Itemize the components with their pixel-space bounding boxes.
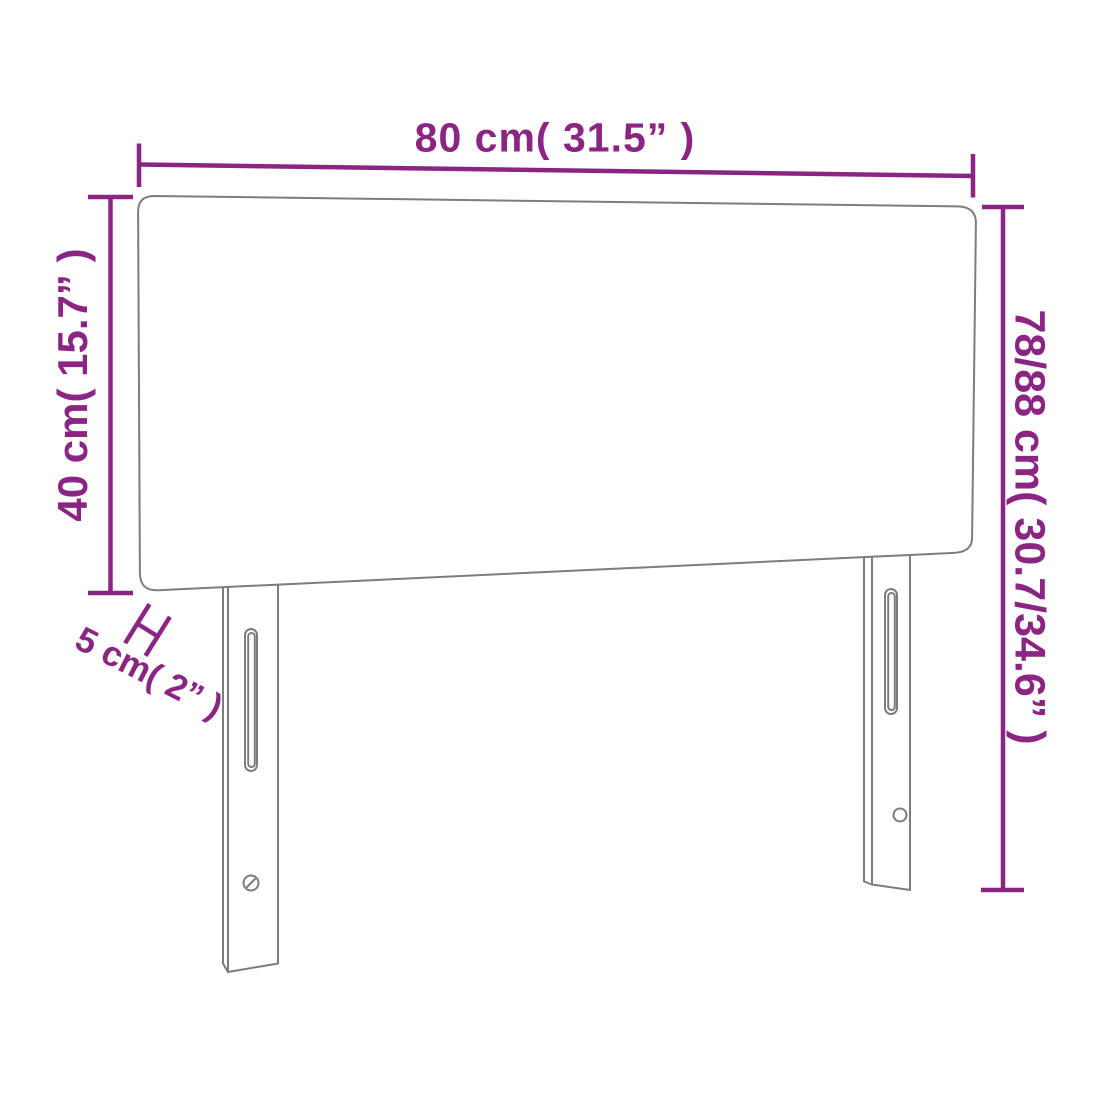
headboard-diagram — [0, 0, 1100, 1100]
width-dimension-line — [139, 165, 973, 177]
thickness-bracket-bar — [137, 624, 157, 637]
product-outline-group — [138, 196, 976, 972]
right-leg-side-face — [864, 545, 872, 885]
total-height-dimension-label: 78/88 cm( 30.7/34.6” ) — [1008, 309, 1051, 744]
right-leg-screw-hole — [894, 809, 907, 822]
panel-height-dimension-label: 40 cm( 15.7” ) — [52, 248, 94, 521]
width-dimension-label: 80 cm( 31.5” ) — [415, 118, 696, 159]
headboard-panel — [138, 196, 976, 590]
diagram-canvas: 80 cm( 31.5” ) 40 cm( 15.7” ) 78/88 cm( … — [0, 0, 1100, 1100]
